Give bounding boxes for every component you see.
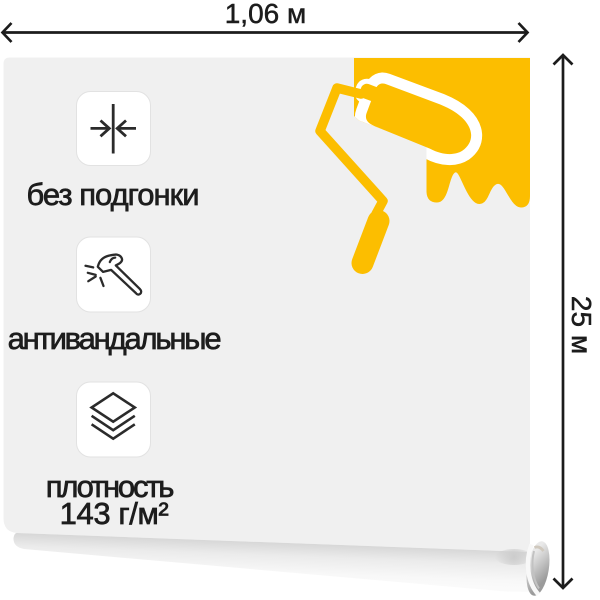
svg-text:25 м: 25 м <box>566 296 597 354</box>
svg-text:антивандальные: антивандальные <box>8 321 221 356</box>
svg-text:1,06 м: 1,06 м <box>225 0 307 29</box>
svg-text:без подгонки: без подгонки <box>26 177 198 212</box>
svg-text:143 г/м²: 143 г/м² <box>60 496 169 531</box>
